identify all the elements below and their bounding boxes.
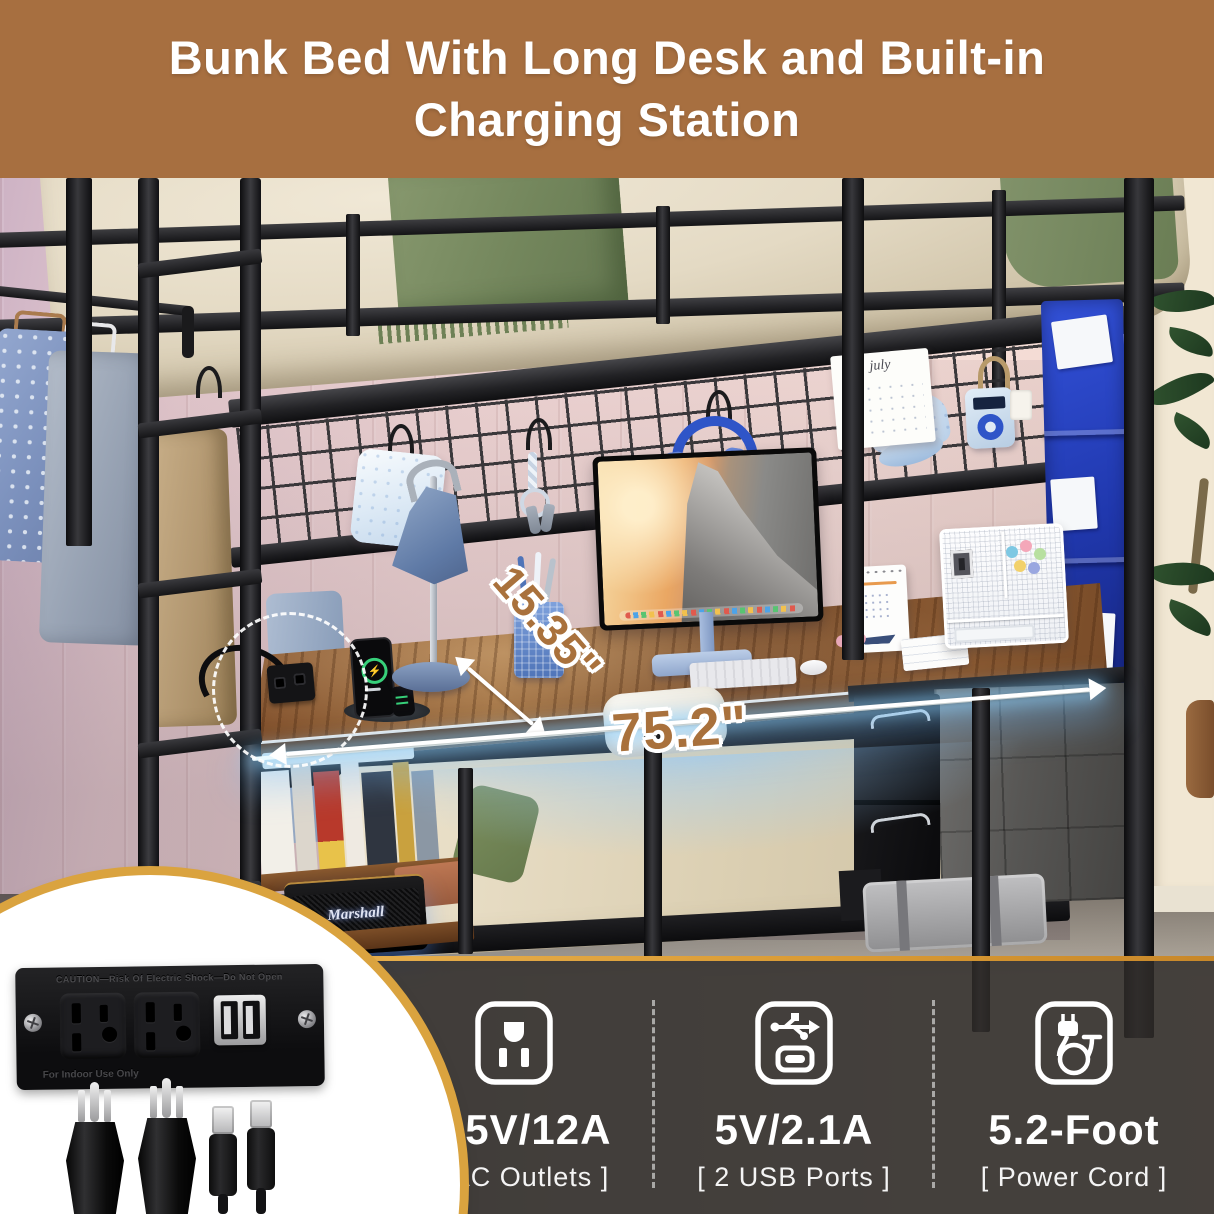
washi-tape	[1006, 546, 1018, 558]
washi-tape	[1028, 562, 1040, 574]
power-plug	[138, 1118, 196, 1214]
plug-ground-prong	[162, 1078, 171, 1118]
key-lanyard	[528, 452, 537, 492]
usb-cable-body	[209, 1134, 237, 1196]
usb-connector	[212, 1106, 234, 1134]
wallpaper-cliff	[598, 452, 819, 625]
watch-screen-line	[396, 696, 408, 699]
monitor-screen	[598, 452, 819, 625]
outlet-slot	[100, 1005, 108, 1022]
baseboard	[1150, 886, 1214, 912]
washi-tape	[1014, 560, 1026, 572]
mini-radio	[964, 387, 1015, 449]
bed-post	[842, 178, 864, 660]
spec-label: [ Power Cord ]	[944, 1162, 1204, 1193]
usb-connector	[250, 1100, 272, 1128]
pocket-papers	[1051, 314, 1113, 369]
outlet-ground-hole	[102, 1027, 117, 1042]
bed-post	[66, 178, 92, 546]
mesh-desk-organizer	[939, 523, 1069, 649]
rail-connector	[656, 206, 670, 324]
caution-text: CAUTION—Risk Of Electric Shock—Do Not Op…	[15, 971, 323, 985]
usb-ports-module	[214, 995, 267, 1046]
spec-cord: 5.2-Foot [ Power Cord ]	[944, 1000, 1204, 1193]
wall-switch	[1010, 390, 1032, 420]
outlet-slot	[146, 1002, 155, 1022]
outlet-ground-hole	[176, 1026, 191, 1041]
ladder-rail	[240, 178, 261, 954]
book	[313, 770, 346, 872]
usb-cable-body	[247, 1128, 275, 1190]
suitcase-strap	[896, 881, 910, 951]
outlet-slot	[146, 1032, 155, 1050]
washi-tape	[1034, 548, 1046, 560]
radio-speaker	[977, 413, 1004, 440]
suitcase	[862, 873, 1047, 952]
radio-screen	[973, 396, 1006, 410]
outlet-highlight-circle	[212, 612, 368, 768]
photo-frame	[950, 550, 973, 579]
plug-prong	[176, 1086, 183, 1118]
screw	[298, 1010, 316, 1028]
usb-port	[243, 1001, 261, 1039]
desk-leg	[458, 768, 473, 954]
indoor-use-text: For Indoor Use Only	[43, 1068, 139, 1080]
spec-separator	[652, 1000, 655, 1188]
ac-outlet-icon	[474, 1000, 554, 1086]
ac-outlet	[134, 992, 201, 1059]
power-cord-icon	[1034, 1000, 1114, 1086]
plug-prong	[78, 1090, 85, 1122]
outlet-slot	[174, 1004, 182, 1021]
organizer-divider	[1001, 532, 1007, 598]
drawer-handle	[869, 708, 930, 729]
plug-prong	[104, 1090, 111, 1122]
length-dimension-label: 75.2"	[610, 693, 750, 764]
spec-value: 5.2-Foot	[944, 1106, 1204, 1154]
suitcase-strap	[988, 876, 1002, 946]
watch-screen-line	[396, 701, 408, 704]
spec-separator	[932, 1000, 935, 1188]
ac-outlet	[60, 993, 127, 1060]
organizer-drawer	[954, 624, 1035, 642]
washi-tape	[1020, 540, 1032, 552]
rail-connector	[346, 214, 360, 336]
plug-ground-prong	[90, 1082, 99, 1122]
usb-cable	[218, 1194, 228, 1214]
usb-cable	[256, 1188, 266, 1214]
plug-prong	[150, 1086, 157, 1118]
page-title-line1: Bunk Bed With Long Desk and Built-in	[169, 27, 1046, 89]
clothes-rod-bracket	[182, 306, 194, 358]
power-plug	[66, 1122, 124, 1214]
pocket-seam	[1044, 429, 1126, 436]
outlet-plate: CAUTION—Risk Of Electric Shock—Do Not Op…	[15, 964, 325, 1090]
spec-label: [ 2 USB Ports ]	[664, 1162, 924, 1193]
organizer-shelf	[948, 614, 1064, 623]
usb-port	[221, 1001, 239, 1039]
title-banner: Bunk Bed With Long Desk and Built-in Cha…	[0, 0, 1214, 178]
page-title-line2: Charging Station	[414, 89, 801, 151]
monitor	[592, 447, 823, 631]
screw	[24, 1014, 42, 1032]
product-infographic: july ⚡	[0, 0, 1214, 1214]
spec-usb: 5V/2.1A [ 2 USB Ports ]	[664, 1000, 924, 1193]
green-blanket-left	[388, 160, 628, 320]
wooden-planter	[1186, 700, 1214, 798]
usb-ports-icon	[754, 1000, 834, 1086]
outlet-slot	[72, 1003, 81, 1023]
spec-value: 5V/2.1A	[664, 1106, 924, 1154]
bed-post	[1124, 178, 1154, 1038]
ladder-rail	[138, 178, 159, 954]
outlet-slot	[72, 1033, 81, 1051]
